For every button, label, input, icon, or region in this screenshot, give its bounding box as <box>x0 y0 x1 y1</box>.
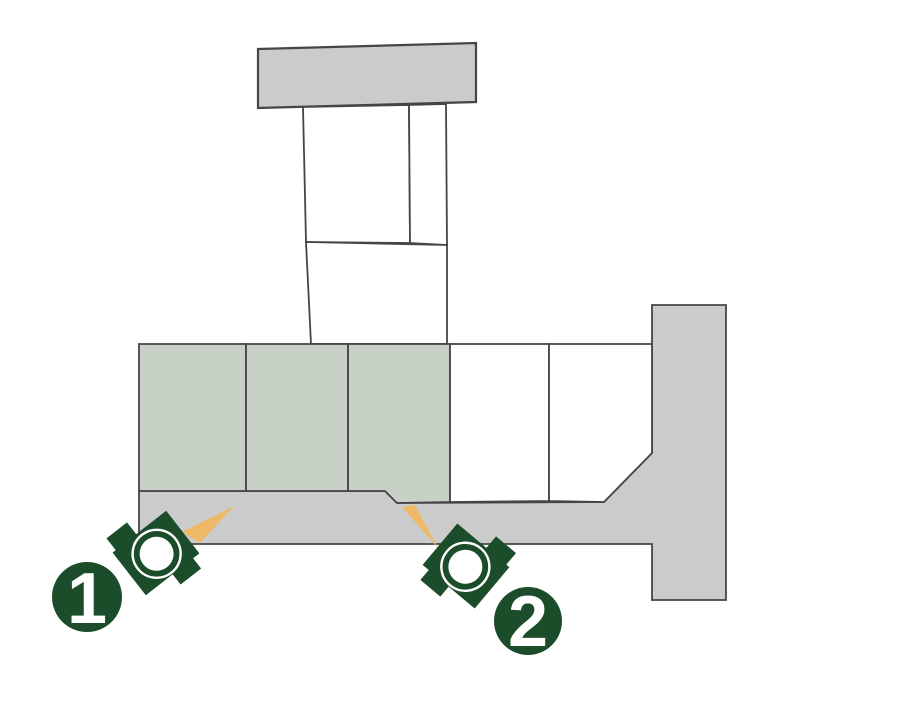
lot-plain-1 <box>450 344 549 502</box>
marker-number-1: 1 <box>67 559 107 639</box>
lot-highlighted-3 <box>348 344 450 503</box>
lot-highlighted-1 <box>139 344 246 491</box>
lot-highlighted-2 <box>246 344 348 491</box>
upper-parcel-left <box>303 105 410 243</box>
top-road <box>258 43 476 108</box>
upper-parcel-narrow <box>409 104 447 245</box>
marker-number-2: 2 <box>508 582 548 662</box>
upper-parcel-lower <box>306 242 447 344</box>
site-plan: 1 2 <box>0 0 924 720</box>
